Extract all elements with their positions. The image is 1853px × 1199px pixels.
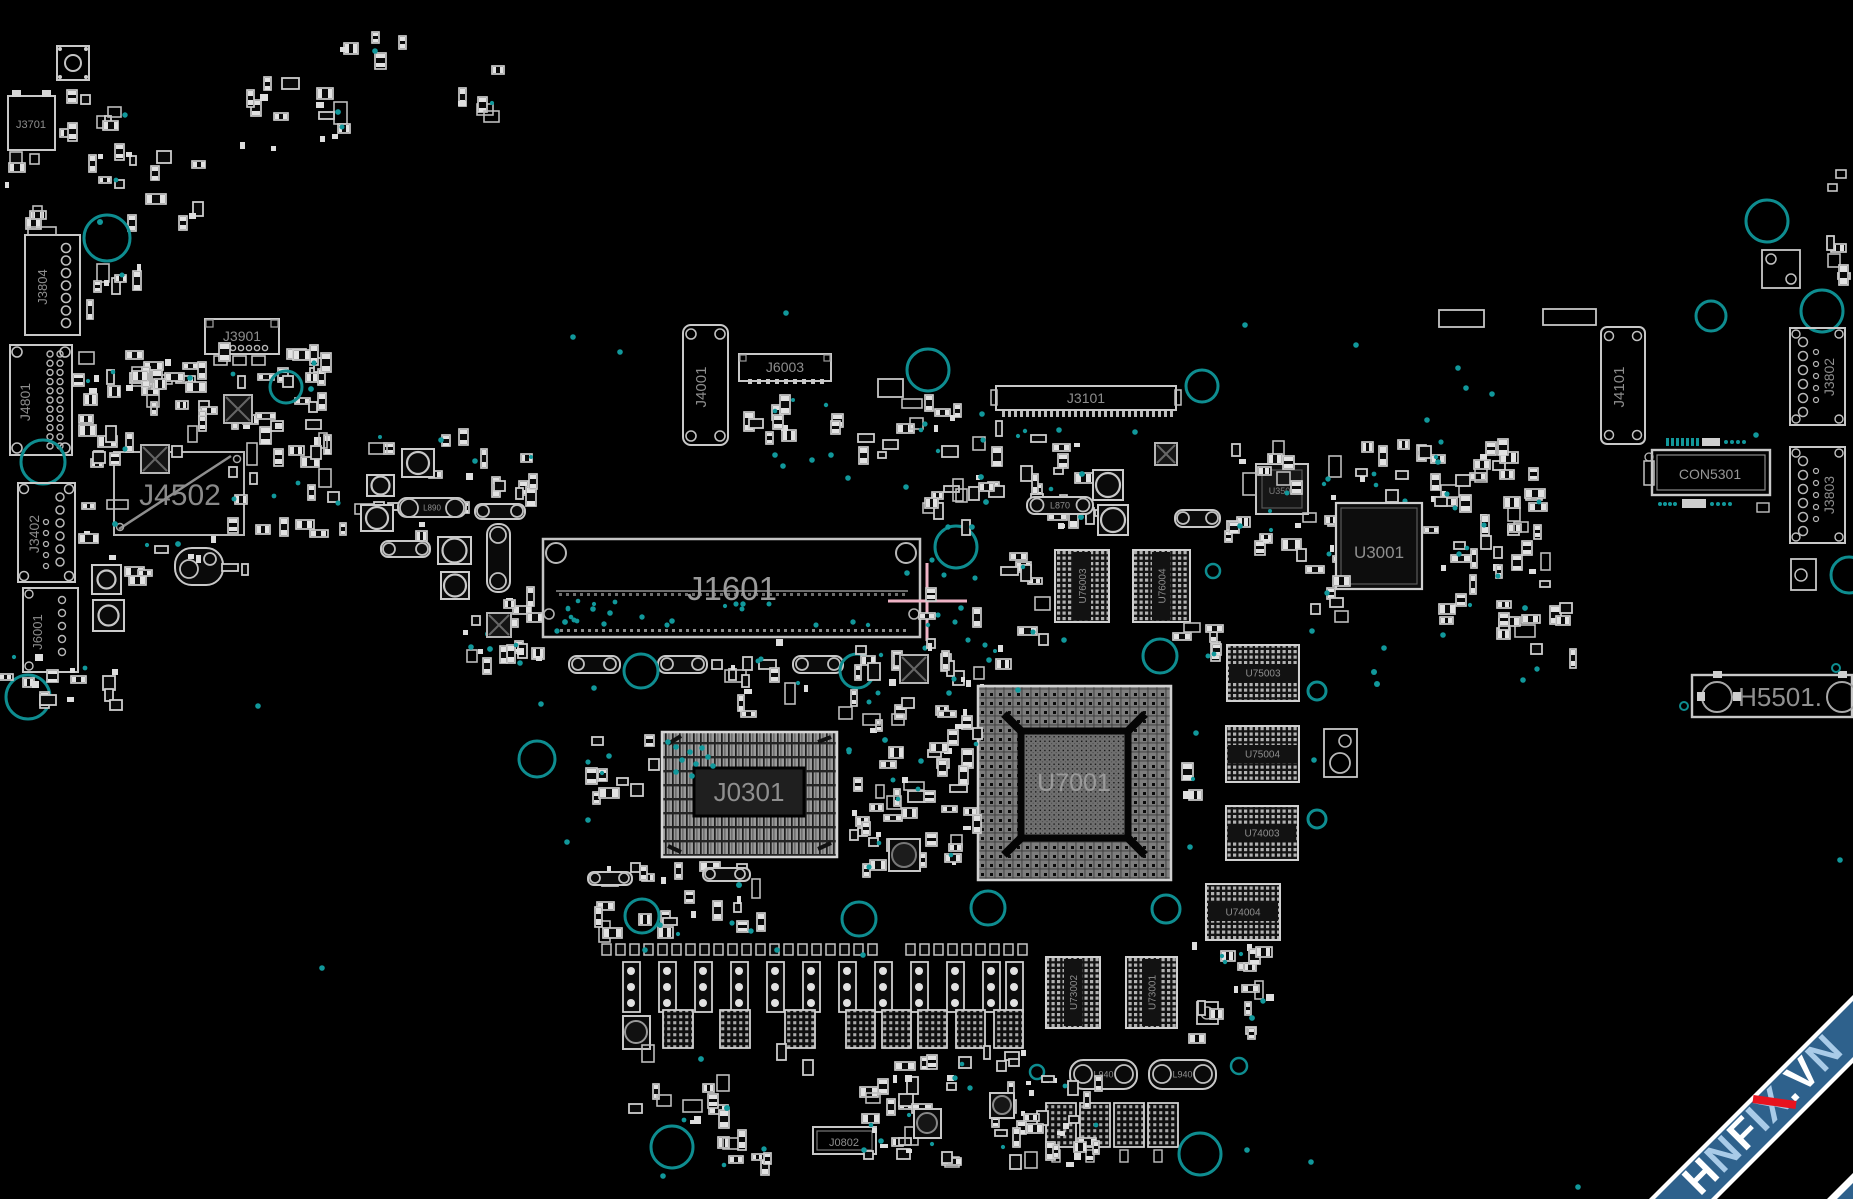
svg-text:U76004: U76004 — [1158, 568, 1169, 603]
svg-text:H5501.: H5501. — [1738, 682, 1822, 712]
svg-text:J3804: J3804 — [35, 269, 50, 304]
svg-text:J1601: J1601 — [687, 570, 777, 607]
svg-text:J3803: J3803 — [1821, 476, 1837, 514]
svg-text:J3701: J3701 — [16, 119, 46, 131]
svg-text:J3101: J3101 — [1067, 390, 1105, 406]
svg-text:L940: L940 — [1172, 1070, 1192, 1080]
svg-text:U73001: U73001 — [1148, 975, 1159, 1010]
svg-text:J3402: J3402 — [26, 515, 42, 553]
svg-text:J0301: J0301 — [714, 777, 785, 807]
svg-text:U76003: U76003 — [1078, 568, 1089, 603]
svg-text:J3901: J3901 — [223, 328, 261, 344]
svg-text:L870: L870 — [1050, 501, 1070, 511]
svg-text:J6001: J6001 — [30, 614, 45, 649]
svg-text:J4801: J4801 — [17, 383, 33, 421]
svg-text:CON5301: CON5301 — [1679, 466, 1741, 482]
svg-text:U7001: U7001 — [1037, 769, 1111, 797]
svg-text:U75003: U75003 — [1245, 669, 1280, 680]
svg-text:J4001: J4001 — [693, 367, 710, 408]
svg-text:U74003: U74003 — [1244, 829, 1279, 840]
svg-text:J4101: J4101 — [1611, 367, 1628, 408]
svg-text:U75004: U75004 — [1245, 750, 1280, 761]
svg-text:J3802: J3802 — [1821, 358, 1837, 396]
svg-text:J0802: J0802 — [829, 1137, 859, 1149]
svg-text:U73002: U73002 — [1069, 975, 1080, 1010]
svg-text:L890: L890 — [423, 503, 441, 512]
svg-text:U3001: U3001 — [1354, 543, 1404, 562]
svg-text:U74004: U74004 — [1225, 908, 1260, 919]
svg-text:J6003: J6003 — [766, 359, 804, 375]
